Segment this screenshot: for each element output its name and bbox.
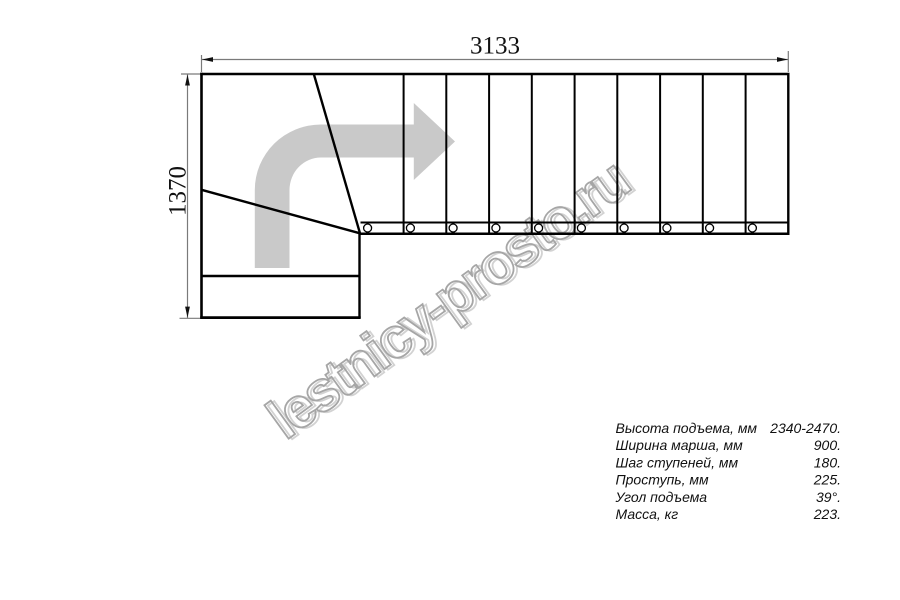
svg-text:Угол подъема: Угол подъема xyxy=(615,489,708,505)
svg-text:3133: 3133 xyxy=(470,33,520,60)
svg-text:223.: 223. xyxy=(813,506,841,522)
svg-text:39°.: 39°. xyxy=(816,489,841,505)
svg-text:Шаг ступеней, мм: Шаг ступеней, мм xyxy=(616,454,739,470)
svg-text:900.: 900. xyxy=(814,437,841,453)
svg-text:1370: 1370 xyxy=(165,166,192,216)
svg-text:180.: 180. xyxy=(814,454,841,470)
svg-text:2340-2470.: 2340-2470. xyxy=(769,420,841,436)
svg-text:Высота подъема, мм: Высота подъема, мм xyxy=(616,420,758,436)
svg-text:Проступь, мм: Проступь, мм xyxy=(616,472,710,488)
svg-text:Масса, кг: Масса, кг xyxy=(616,506,679,522)
svg-text:225.: 225. xyxy=(813,472,841,488)
svg-text:Ширина марша, мм: Ширина марша, мм xyxy=(616,437,744,453)
